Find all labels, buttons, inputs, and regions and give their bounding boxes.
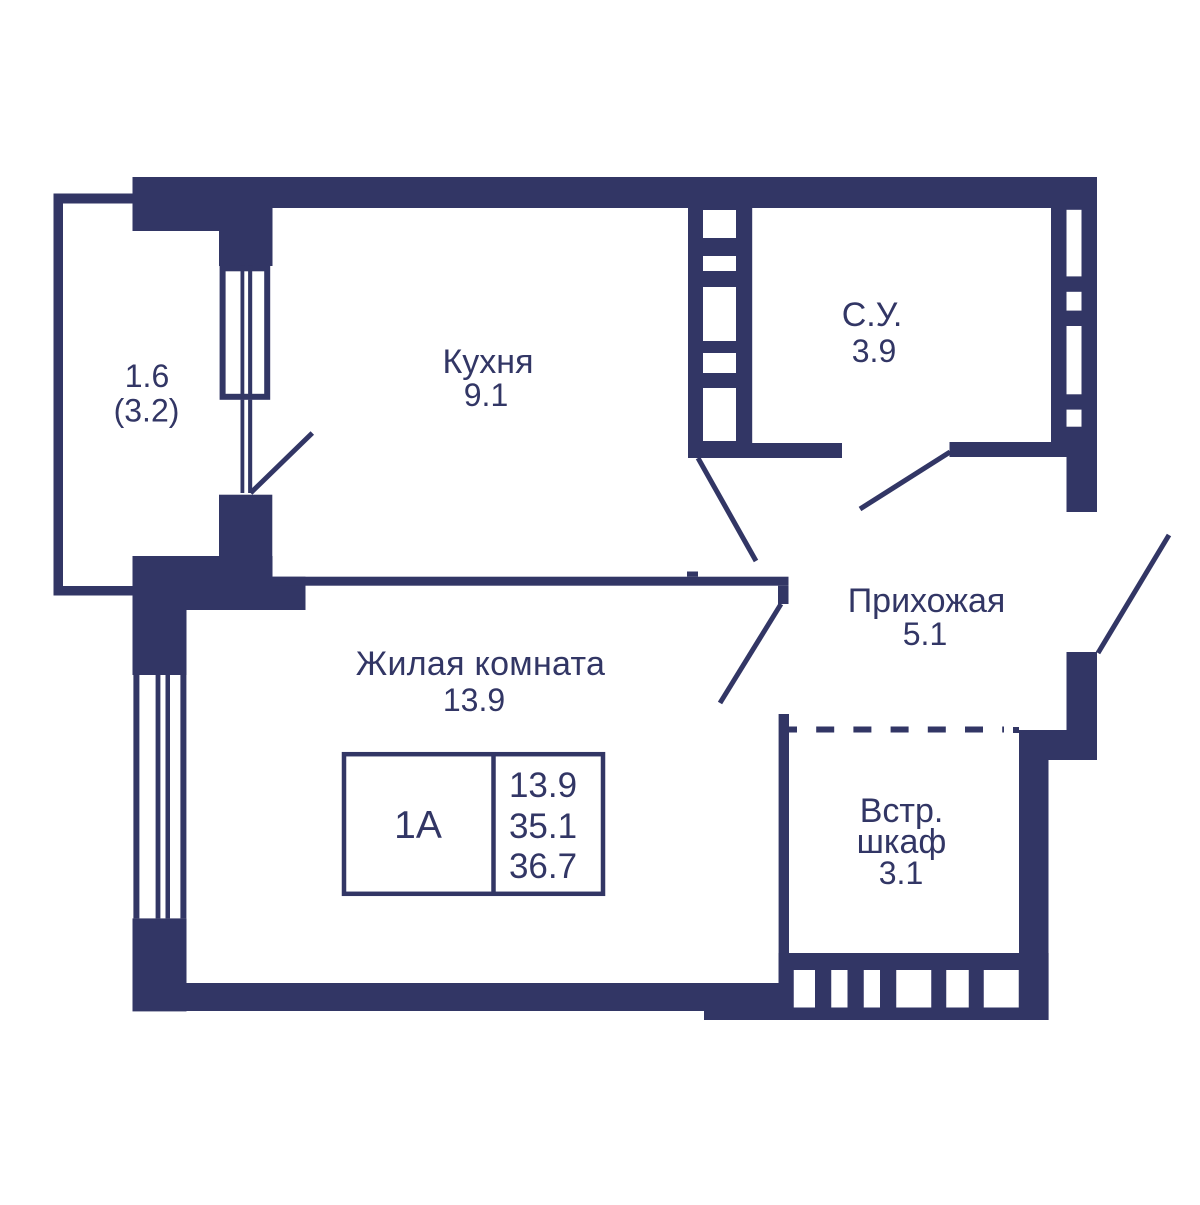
svg-text:Прихожая: Прихожая (848, 582, 1006, 620)
svg-text:36.7: 36.7 (509, 847, 577, 886)
svg-text:Жилая комната: Жилая комната (356, 645, 605, 683)
svg-text:13.9: 13.9 (509, 766, 577, 805)
svg-text:13.9: 13.9 (443, 682, 505, 718)
svg-text:9.1: 9.1 (464, 377, 508, 413)
svg-text:5.1: 5.1 (903, 616, 947, 652)
svg-text:1А: 1А (394, 804, 442, 847)
svg-text:(3.2): (3.2) (114, 393, 180, 429)
svg-text:3.1: 3.1 (879, 855, 923, 891)
svg-text:С.У.: С.У. (842, 296, 903, 334)
svg-text:1.6: 1.6 (125, 358, 169, 394)
svg-text:3.9: 3.9 (852, 333, 896, 369)
svg-text:35.1: 35.1 (509, 807, 577, 846)
svg-text:Кухня: Кухня (443, 343, 534, 381)
